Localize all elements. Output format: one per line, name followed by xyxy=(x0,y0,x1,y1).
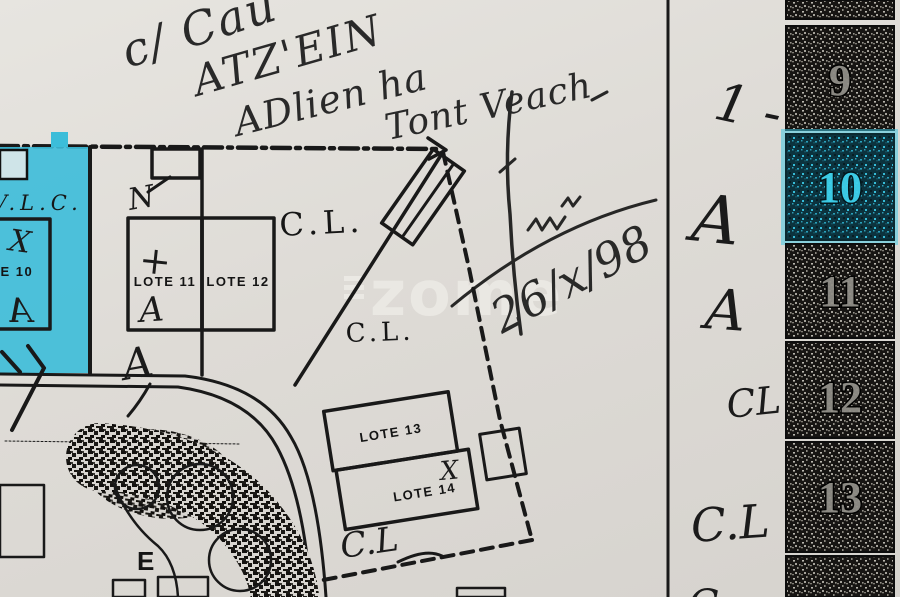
key-cell-partial-top xyxy=(786,0,894,19)
plan-notch-box xyxy=(0,150,27,179)
margin-mark-3: A xyxy=(698,277,748,345)
small-plan-box xyxy=(152,149,200,178)
margin-mark-6: C xyxy=(688,582,719,597)
handwritten-n-mark: N xyxy=(124,179,159,219)
building-box xyxy=(158,577,208,597)
handwritten-x-lot14: X xyxy=(437,455,462,487)
margin-handwriting: 1 - A A CL C.L C xyxy=(682,72,787,597)
highlighter-area xyxy=(0,147,90,373)
building-box xyxy=(0,485,44,557)
handwritten-cl-cursive: C.L xyxy=(338,519,401,567)
handwritten-a-lot10: A xyxy=(7,291,35,331)
key-number-12: 12 xyxy=(818,373,862,422)
pen-squiggle xyxy=(528,217,565,230)
cl-label-lower: C.L. xyxy=(345,317,415,349)
scanned-plot-map: zome c/ Cau ATZ'EIN ADlien ha Tont Veach… xyxy=(0,0,900,597)
highlighter-smudge xyxy=(51,132,68,147)
cl-label-upper: C.L. xyxy=(278,202,365,244)
handwritten-plus-lot11: + xyxy=(137,237,173,284)
key-number-11: 11 xyxy=(819,267,861,316)
margin-mark-4: CL xyxy=(724,378,783,427)
pen-squiggle xyxy=(562,197,580,206)
key-number-10: 10 xyxy=(818,163,862,212)
building-box xyxy=(113,580,145,597)
lots-13-14: LOTE 13 LOTE 14 X xyxy=(324,390,478,530)
pen-stroke xyxy=(592,92,607,100)
handwritten-a-lot11: A xyxy=(135,289,165,331)
handwritten-a-below-lots: A xyxy=(114,336,156,390)
lot12-label: LOTE 12 xyxy=(206,274,269,289)
key-number-9: 9 xyxy=(829,56,851,105)
margin-mark-1: 1 - xyxy=(709,72,787,145)
key-number-13: 13 xyxy=(818,473,862,522)
lot13-label: LOTE 13 xyxy=(358,420,423,445)
key-cell-partial-bottom xyxy=(786,556,894,597)
building-box xyxy=(457,588,505,597)
pen-flourish xyxy=(398,553,442,562)
key-column: 9 10 11 12 13 xyxy=(781,0,898,597)
e-label: E xyxy=(137,546,154,576)
margin-mark-2: A xyxy=(682,179,743,261)
lot10-highlight-block: V.L.C. X LOTE 10 A xyxy=(0,132,90,373)
plan-canvas: zome c/ Cau ATZ'EIN ADlien ha Tont Veach… xyxy=(0,0,900,597)
margin-mark-5: C.L xyxy=(689,494,771,553)
vlc-label: V.L.C. xyxy=(0,191,83,215)
lot10-label: LOTE 10 xyxy=(0,264,33,279)
